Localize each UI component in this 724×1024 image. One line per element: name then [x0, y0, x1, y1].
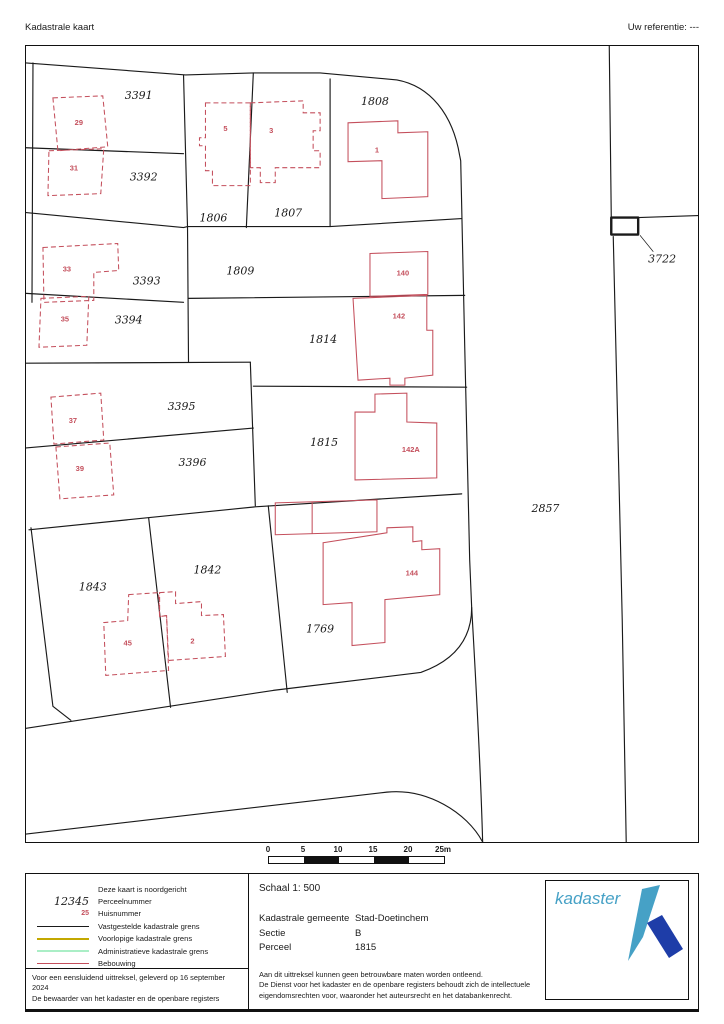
legend-rows: Deze kaart is noordgericht12345Perceelnu…	[26, 874, 248, 970]
scale-tick-label: 5	[301, 845, 305, 854]
house-number-labels: 293153133351401423739142A144452	[61, 118, 421, 648]
certification-note: Voor een eensluidend uittreksel, gelever…	[26, 968, 248, 1009]
disclaimer-line-3: eigendomsrechten voor, waaronder het aut…	[259, 991, 569, 1001]
kadaster-logo: kadaster	[545, 880, 689, 1000]
cadastral-map: 3391339218061807180818093393339418143395…	[25, 45, 699, 843]
parcel-number-label: 1769	[306, 623, 334, 636]
parcel-number-label: 3722	[648, 252, 676, 265]
legend-label: Perceelnummer	[98, 897, 152, 906]
row-label: Kadastrale gemeente	[259, 912, 355, 927]
row-label: Perceel	[259, 941, 355, 956]
legend-symbol	[34, 938, 98, 940]
table-row: Kadastrale gemeente Stad-Doetinchem	[259, 912, 428, 927]
map-canvas: 3391339218061807180818093393339418143395…	[26, 46, 698, 842]
house-number-label: 45	[124, 638, 132, 647]
parcel-number-label: 3396	[179, 456, 207, 469]
parcel-number-label: 1809	[226, 264, 254, 277]
legend-symbol: 25	[34, 910, 98, 917]
legend-row: Administratieve kadastrale grens	[34, 945, 242, 957]
legend-symbol: 12345	[34, 895, 98, 908]
house-number-label: 35	[61, 314, 69, 323]
legend-label: Administratieve kadastrale grens	[98, 947, 208, 956]
row-value: 1815	[355, 941, 376, 956]
scale-bar-segments	[268, 856, 445, 864]
legend-row: Voorlopige kadastrale grens	[34, 933, 242, 945]
legend-symbol	[34, 950, 98, 952]
scale-segment	[339, 857, 374, 863]
parcel-info-table: Kadastrale gemeente Stad-Doetinchem Sect…	[259, 912, 428, 956]
house-number-label: 2	[190, 636, 194, 645]
certify-line-2: De bewaarder van het kadaster en de open…	[32, 994, 242, 1004]
cadastral-extract-page: Kadastrale kaart Uw referentie: ---	[0, 0, 724, 1024]
parcel-number-label: 1815	[310, 436, 338, 449]
disclaimer-line-1: Aan dit uittreksel kunnen geen betrouwba…	[259, 970, 569, 980]
scale-bar: 0510152025m	[268, 845, 444, 867]
table-row: Perceel 1815	[259, 941, 428, 956]
header: Kadastrale kaart Uw referentie: ---	[25, 22, 699, 33]
scale-tick-label: 0	[266, 845, 270, 854]
house-number-label: 33	[63, 264, 71, 273]
parcel-number-label: 3391	[125, 89, 153, 102]
parcel-number-label: 1843	[79, 581, 107, 594]
table-row: Sectie B	[259, 927, 428, 942]
row-value: B	[355, 927, 361, 942]
scale-segment	[409, 857, 444, 863]
house-number-label: 29	[75, 118, 83, 127]
scale-bar-ticks: 0510152025m	[268, 845, 444, 855]
legend-row: Vastgestelde kadastrale grens	[34, 920, 242, 932]
info-panel: Deze kaart is noordgericht12345Perceelnu…	[25, 873, 699, 1012]
parcel-number-label: 1814	[309, 333, 337, 346]
legend-symbol	[34, 963, 98, 965]
legend-label: Deze kaart is noordgericht	[98, 885, 187, 894]
parcel-number-label: 3392	[130, 171, 158, 184]
legend-line-swatch	[37, 926, 89, 928]
legend-label: Voorlopige kadastrale grens	[98, 934, 192, 943]
legend-row: 12345Perceelnummer	[34, 895, 242, 907]
house-number-label: 3	[269, 126, 273, 135]
house-number-label: 31	[70, 164, 78, 173]
parcel-number-label: 1808	[361, 95, 389, 108]
legend: Deze kaart is noordgericht12345Perceelnu…	[26, 874, 249, 1009]
legend-line-swatch	[37, 963, 89, 965]
house-number-label: 142	[393, 311, 405, 320]
parcel-number-sample: 12345	[54, 895, 89, 908]
scale-segment	[269, 857, 304, 863]
house-number-label: 140	[397, 268, 409, 277]
parcel-number-label: 1807	[274, 207, 302, 220]
house-number-label: 142A	[402, 445, 420, 454]
legend-label: Vastgestelde kadastrale grens	[98, 922, 200, 931]
legend-row: Deze kaart is noordgericht	[34, 883, 242, 895]
house-number-label: 37	[69, 416, 77, 425]
house-number-label: 5	[223, 124, 227, 133]
parcel-number-label: 1842	[194, 564, 222, 577]
legend-line-swatch	[37, 950, 89, 952]
parcel-number-label: 3394	[115, 313, 143, 326]
legend-row: 25Huisnummer	[34, 908, 242, 920]
scale-tick-label: 25m	[435, 845, 451, 854]
building-outlines-solid	[275, 121, 440, 646]
parcel-number-label: 1806	[200, 212, 228, 225]
row-value: Stad-Doetinchem	[355, 912, 428, 927]
house-number-sample: 25	[81, 910, 89, 917]
house-number-label: 1	[375, 146, 379, 155]
certify-line-1: Voor een eensluidend uittreksel, gelever…	[32, 973, 242, 994]
parcel-number-label: 3395	[168, 400, 196, 413]
parcel-boundaries	[26, 46, 698, 842]
scale-tick-label: 10	[334, 845, 343, 854]
reference-label: Uw referentie: ---	[628, 22, 699, 33]
kadaster-k-icon	[592, 885, 684, 993]
parcel-number-label: 3393	[133, 274, 161, 287]
legend-label: Bebouwing	[98, 959, 136, 968]
scale-tick-label: 20	[404, 845, 413, 854]
row-label: Sectie	[259, 927, 355, 942]
house-number-label: 144	[406, 569, 419, 578]
scale-tick-label: 15	[369, 845, 378, 854]
house-number-label: 39	[76, 464, 84, 473]
legend-line-swatch	[37, 938, 89, 940]
page-title: Kadastrale kaart	[25, 22, 94, 33]
disclaimer-line-2: De Dienst voor het kadaster en de openba…	[259, 980, 569, 990]
parcel-number-label: 2857	[531, 502, 560, 515]
disclaimer: Aan dit uittreksel kunnen geen betrouwba…	[259, 970, 569, 1001]
scale-label: Schaal 1: 500	[259, 883, 320, 894]
legend-symbol	[34, 926, 98, 928]
legend-label: Huisnummer	[98, 909, 141, 918]
scale-segment	[374, 857, 409, 863]
scale-segment	[304, 857, 339, 863]
